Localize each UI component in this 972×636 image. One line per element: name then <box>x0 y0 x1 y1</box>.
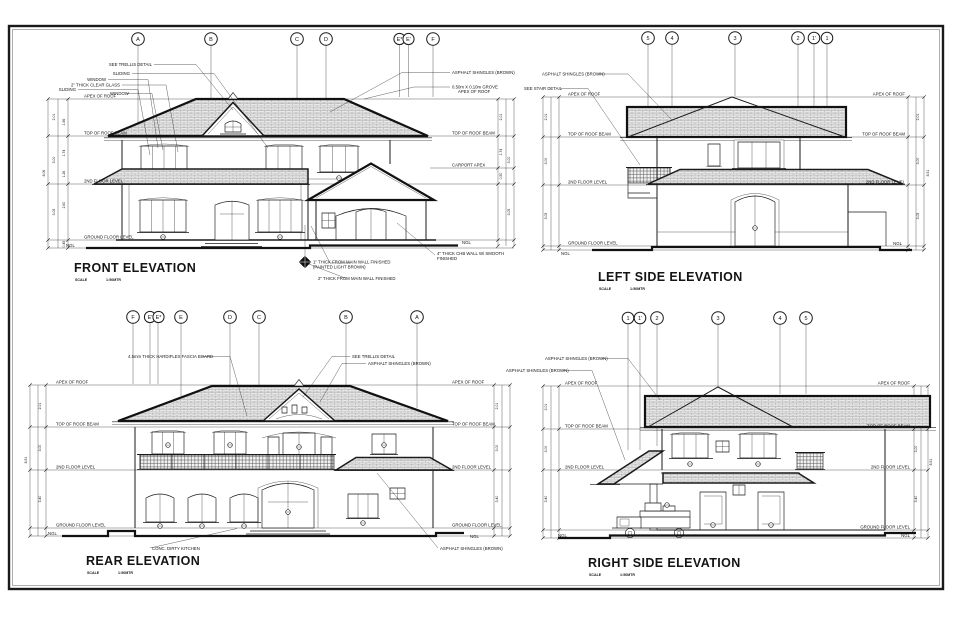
grid-bubble-e-star: E* <box>153 311 164 322</box>
level-label-ngl: NGL <box>561 251 570 256</box>
window-tag-icon <box>361 521 366 526</box>
grid-bubble-c: C <box>253 311 266 324</box>
level-label-ground: GROUND FLOOR LEVEL <box>452 523 502 528</box>
grid-bubble-e-prime: E' <box>403 33 414 44</box>
window-tag-icon <box>769 523 774 528</box>
window-tag-icon <box>711 523 716 528</box>
dim-value: 3.40 <box>544 496 548 503</box>
level-label-2nd-floor: 2ND FLOOR LEVEL <box>565 465 605 470</box>
dim-value: 3.00 <box>52 157 56 164</box>
dim-value: 3.40 <box>914 496 918 503</box>
note-clear-glass: 2" THICK CLEAR GLASS <box>71 83 120 88</box>
note-sliding: SLIDING <box>113 71 131 76</box>
level-label-roof-beam: TOP OF ROOF BEAM <box>84 131 127 136</box>
window-tag-icon <box>286 510 291 515</box>
grid-bubble-label: 4 <box>670 36 673 42</box>
window-tag-icon <box>228 443 233 448</box>
dim-value: 3.05 <box>544 213 548 220</box>
grid-bubble-2: 2 <box>792 32 805 45</box>
level-label-ngl: NGL <box>558 533 567 538</box>
level-label-roof-beam: TOP OF ROOF BEAM <box>862 132 905 137</box>
dim-value: 2.01 <box>544 404 548 411</box>
dim-value: 8.06 <box>42 170 46 177</box>
dim-value: 1.74 <box>499 149 503 156</box>
note-asphalt: ASPHALT SHINGLES (BROWN) <box>545 356 608 361</box>
window-tag-icon <box>242 524 247 529</box>
window-tag-icon <box>382 443 387 448</box>
grid-bubble-label: 2 <box>655 316 658 322</box>
grid-bubble-a: A <box>411 311 424 324</box>
note-fascia: 4.5mm THICK HARDIFLEX FASCIA BOARD <box>128 354 213 359</box>
window-tag-icon <box>158 524 163 529</box>
note-see-stair: SEE STAIR DETAIL <box>524 86 563 91</box>
note-asphalt: ASPHALT SHINGLES (BROWN) <box>506 368 569 373</box>
front-elevation-title: FRONT ELEVATION <box>74 261 196 275</box>
level-label-carport-apex: CARPORT APEX <box>452 163 485 168</box>
grid-bubble-label: 1 <box>825 36 828 42</box>
dim-value: 3.00 <box>544 158 548 165</box>
dim-value: 8.51 <box>24 457 28 464</box>
grid-bubble-label: E' <box>406 37 411 43</box>
note-asphalt: ASPHALT SHINGLES (BROWN) <box>440 546 503 551</box>
level-label-ngl: NGL <box>901 533 910 538</box>
window-tag-icon <box>337 176 342 181</box>
grid-bubble-label: E* <box>397 37 404 43</box>
grid-bubble-5: 5 <box>642 32 655 45</box>
grid-bubble-2: 2 <box>651 312 664 325</box>
grid-bubble-label: D <box>324 37 328 43</box>
level-label-apex: APEX OF ROOF <box>565 381 598 386</box>
balcony-railing <box>140 455 334 469</box>
note-grove-apex: APEX OF ROOF <box>458 89 491 94</box>
scale-label: SCALE <box>589 573 602 577</box>
level-label-2nd-floor: 2ND FLOOR LEVEL <box>452 465 492 470</box>
grid-bubble-label: E' <box>148 315 153 321</box>
grid-bubble-f: F <box>427 33 440 46</box>
level-label-roof-beam: TOP OF ROOF BEAM <box>452 422 495 427</box>
dim-value: 3.00 <box>507 157 511 164</box>
grid-bubble-label: 5 <box>804 316 807 322</box>
note-sliding: SLIDING <box>59 87 77 92</box>
level-label-roof-beam: TOP OF ROOF BEAM <box>867 424 910 429</box>
dim-value: 3.05 <box>52 209 56 216</box>
grid-bubble-1-prime: 1' <box>808 32 820 44</box>
dim-value: 3.00 <box>38 445 42 452</box>
level-label-apex: APEX OF ROOF <box>568 92 601 97</box>
grid-bubble-4: 4 <box>774 312 787 325</box>
grid-bubble-label: E <box>179 315 183 321</box>
dim-value: 0.50 <box>499 173 503 180</box>
grid-bubble-1: 1 <box>821 32 833 44</box>
left-side-elevation-title: LEFT SIDE ELEVATION <box>598 270 743 284</box>
level-label-2nd-floor: 2ND FLOOR LEVEL <box>56 465 96 470</box>
grid-bubble-label: 4 <box>778 316 781 322</box>
grid-bubble-label: C <box>295 37 299 43</box>
scale-label: SCALE <box>75 278 88 282</box>
dim-value: 1.56 <box>62 119 66 126</box>
note-see-trellis: SEE TRELLIS DETAIL <box>109 62 153 67</box>
dim-value: 3.00 <box>495 445 499 452</box>
level-label-2nd-floor: 2ND FLOOR LEVEL <box>866 180 906 185</box>
level-label-ngl: NGL <box>48 531 57 536</box>
scale-value: 1:50MTR <box>630 287 645 291</box>
dim-value: 1.74 <box>62 150 66 157</box>
note-asphalt: ASPHALT SHINGLES (BROWN) <box>542 72 605 77</box>
dim-value: 2.01 <box>544 114 548 121</box>
dim-value: 8.51 <box>926 170 930 177</box>
window-tag-icon <box>756 462 761 467</box>
level-label-ngl: NGL <box>893 241 902 246</box>
level-label-ground: GROUND FLOOR LEVEL <box>568 241 618 246</box>
grid-bubble-d: D <box>224 311 237 324</box>
dim-value: 2.01 <box>38 403 42 410</box>
note-window: WINDOW <box>87 77 107 82</box>
grid-bubble-label: 3 <box>716 316 719 322</box>
note-wall-1b: (PAINTED LIGHT BROWN) <box>313 265 366 270</box>
level-label-ngl: NGL <box>462 240 471 245</box>
scale-label: SCALE <box>87 571 100 575</box>
note-wall-4b: FINISHED <box>437 256 457 261</box>
dim-value: 3.40 <box>38 496 42 503</box>
level-label-ground: GROUND FLOOR LEVEL <box>860 525 910 530</box>
grid-bubble-a: A <box>132 33 145 46</box>
level-label-apex: APEX OF ROOF <box>452 380 485 385</box>
grid-bubble-b: B <box>340 311 353 324</box>
level-label-apex: APEX OF ROOF <box>56 380 89 385</box>
note-dirty-kitchen: CONC. DIRTY KITCHEN <box>152 546 200 551</box>
dim-value: 1.26 <box>62 171 66 178</box>
grid-bubble-c: C <box>291 33 304 46</box>
window-tag-icon <box>166 443 171 448</box>
level-label-apex: APEX OF ROOF <box>878 381 911 386</box>
grid-bubble-label: 1' <box>812 36 816 42</box>
level-label-apex: APEX OF ROOF <box>84 94 117 99</box>
window-tag-icon <box>200 524 205 529</box>
dim-value: 3.05 <box>507 209 511 216</box>
grid-bubble-label: 2 <box>796 36 799 42</box>
note-see-trellis: SEE TRELLIS DETAIL <box>352 354 396 359</box>
dim-value: 2.01 <box>495 403 499 410</box>
grid-bubble-b: B <box>205 33 218 46</box>
dim-value: 3.40 <box>495 496 499 503</box>
grid-bubble-e: E <box>175 311 188 324</box>
grid-bubble-f: F <box>127 311 140 324</box>
grid-bubble-label: A <box>415 315 419 321</box>
grid-bubble-1-prime: 1' <box>634 312 646 324</box>
level-label-roof-beam: TOP OF ROOF BEAM <box>565 424 608 429</box>
scale-value: 1:50MTR <box>106 278 121 282</box>
dim-value: 3.00 <box>544 446 548 453</box>
dim-value: 2.01 <box>52 114 56 121</box>
scale-value: 1:50MTR <box>118 571 133 575</box>
grid-bubble-label: 5 <box>646 36 649 42</box>
level-label-apex: APEX OF ROOF <box>873 92 906 97</box>
level-label-ngl: NGL <box>66 243 75 248</box>
grid-bubble-1: 1 <box>622 312 634 324</box>
grid-bubble-label: D <box>228 315 232 321</box>
dim-value: 8.51 <box>929 459 933 466</box>
grid-bubble-label: 3 <box>733 36 736 42</box>
grid-bubble-label: E* <box>156 315 163 321</box>
window-tag-icon <box>161 235 166 240</box>
dim-value: 3.00 <box>916 158 920 165</box>
grid-bubble-label: C <box>257 315 261 321</box>
right-side-elevation-title: RIGHT SIDE ELEVATION <box>588 556 741 570</box>
grid-bubble-5: 5 <box>800 312 813 325</box>
grid-bubble-label: B <box>344 315 348 321</box>
scale-value: 1:50MTR <box>620 573 635 577</box>
level-label-2nd-floor: 2ND FLOOR LEVEL <box>84 179 124 184</box>
level-label-ground: GROUND FLOOR LEVEL <box>56 523 106 528</box>
level-label-2nd-floor: 2ND FLOOR LEVEL <box>568 180 608 185</box>
grid-bubble-d: D <box>320 33 333 46</box>
grid-bubble-label: 1 <box>626 316 629 322</box>
window-tag-icon <box>688 462 693 467</box>
level-label-2nd-floor: 2ND FLOOR LEVEL <box>871 465 911 470</box>
window-tag-icon <box>753 226 758 231</box>
grid-bubble-label: A <box>136 37 140 43</box>
stair-railing <box>797 453 823 469</box>
dim-value: 2.01 <box>916 114 920 121</box>
level-label-ground: GROUND FLOOR LEVEL <box>84 235 134 240</box>
level-label-roof-beam: TOP OF ROOF BEAM <box>568 132 611 137</box>
dim-value: 3.00 <box>914 446 918 453</box>
note-wall-2: 2" THICK FROM MAIN WALL FINISHED <box>318 276 396 281</box>
rear-elevation-title: REAR ELEVATION <box>86 554 200 568</box>
grid-bubble-3: 3 <box>712 312 725 325</box>
level-label-ngl: NGL <box>470 534 479 539</box>
level-label-roof-beam: TOP OF ROOF BEAM <box>56 422 99 427</box>
window-tag-icon <box>278 235 283 240</box>
window-tag-icon <box>297 445 302 450</box>
window-tag-icon <box>665 503 670 508</box>
scale-label: SCALE <box>599 287 612 291</box>
dim-value: 3.05 <box>916 213 920 220</box>
drawing-sheet: A B C D E* E' F 8.06 2.01 3.00 3.05 1.56… <box>0 0 972 636</box>
note-asphalt: ASPHALT SHINGLES (BROWN) <box>452 70 515 75</box>
grid-bubble-label: B <box>209 37 213 43</box>
elevation-sheet-svg: A B C D E* E' F 8.06 2.01 3.00 3.05 1.56… <box>0 0 972 636</box>
grid-bubble-4: 4 <box>666 32 679 45</box>
grid-bubble-3: 3 <box>729 32 742 45</box>
note-asphalt: ASPHALT SHINGLES (BROWN) <box>368 361 431 366</box>
level-label-roof-beam: TOP OF ROOF BEAM <box>452 131 495 136</box>
dim-value: 2.60 <box>62 202 66 209</box>
dim-value: 2.01 <box>499 114 503 121</box>
grid-bubble-label: 1' <box>638 316 642 322</box>
